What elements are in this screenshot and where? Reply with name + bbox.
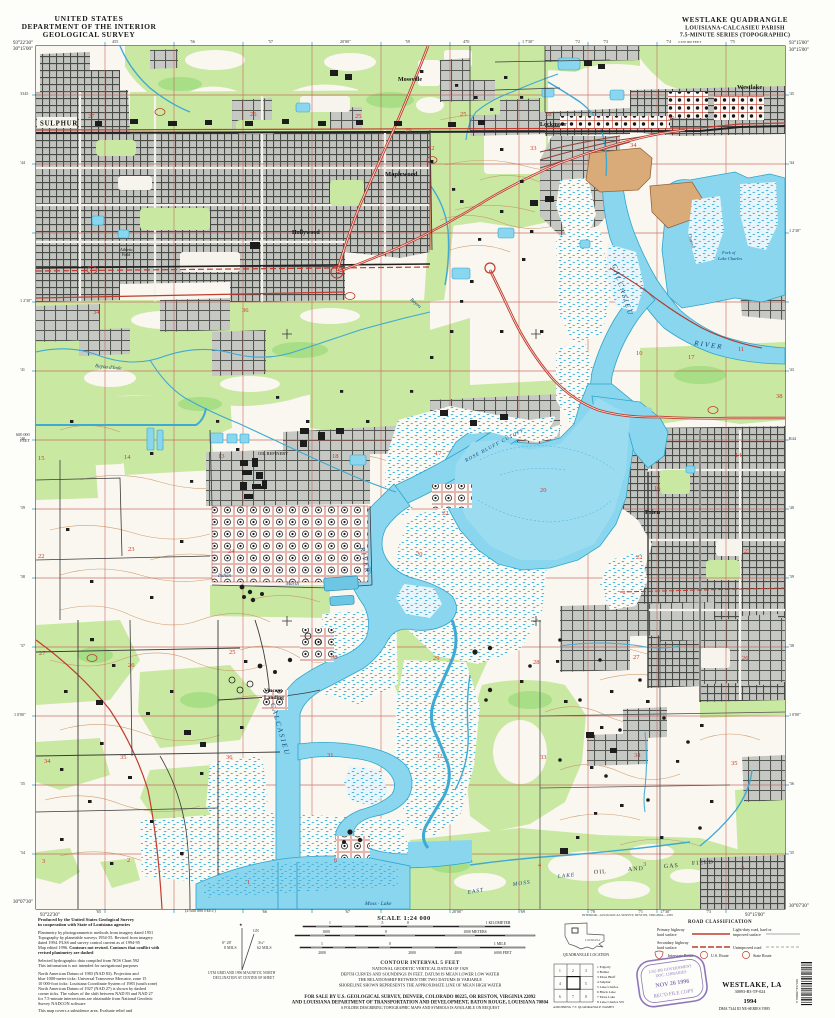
svg-text:14: 14 xyxy=(124,454,131,461)
svg-text:17: 17 xyxy=(435,450,442,457)
svg-text:'75: '75 xyxy=(730,39,735,44)
svg-text:DECLINATION AT CENTER OF SHEET: DECLINATION AT CENTER OF SHEET xyxy=(213,976,275,980)
svg-text:SHORELINE SHOWN REPRESENTS THE: SHORELINE SHOWN REPRESENTS THE APPROXIMA… xyxy=(339,983,502,988)
svg-text:93°15'00": 93°15'00" xyxy=(745,913,765,918)
svg-text:16: 16 xyxy=(654,485,661,492)
svg-text:'56: '56 xyxy=(190,39,195,44)
svg-text:NATIONAL GEODETIC VERTICAL DAT: NATIONAL GEODETIC VERTICAL DATUM OF 1929 xyxy=(372,966,468,971)
svg-text:27: 27 xyxy=(633,654,640,661)
svg-text:28: 28 xyxy=(533,659,540,666)
svg-text:'35: '35 xyxy=(20,781,25,786)
svg-text:'35: '35 xyxy=(789,850,794,855)
svg-text:20'00": 20'00" xyxy=(340,39,351,44)
svg-text:FEET: FEET xyxy=(20,438,30,443)
svg-text:State Route: State Route xyxy=(753,953,772,958)
svg-text:Marsh: Marsh xyxy=(285,582,300,587)
svg-text:'57: '57 xyxy=(268,39,273,44)
svg-text:455: 455 xyxy=(112,39,118,44)
svg-text:LOUISIANA-CALCASIEU PARISH: LOUISIANA-CALCASIEU PARISH xyxy=(685,26,785,32)
svg-text:1: 1 xyxy=(247,879,250,886)
svg-text:1 2'30": 1 2'30" xyxy=(789,228,801,233)
svg-text:17: 17 xyxy=(688,354,695,361)
svg-text:DMA 7344 III NE-SERIES V885: DMA 7344 III NE-SERIES V885 xyxy=(719,1007,770,1011)
svg-text:Maplewood: Maplewood xyxy=(385,171,418,178)
svg-text:Lockmoor: Lockmoor xyxy=(540,122,567,128)
svg-text:ADJOINING 7.5' QUADRANGLE NAME: ADJOINING 7.5' QUADRANGLE NAMES xyxy=(553,1005,614,1009)
svg-text:25: 25 xyxy=(229,649,236,656)
svg-text:20: 20 xyxy=(416,551,423,558)
svg-text:36: 36 xyxy=(226,754,233,761)
svg-text:30°15'00": 30°15'00" xyxy=(13,47,33,52)
svg-text:3 Moss Bluff: 3 Moss Bluff xyxy=(597,975,616,979)
svg-text:30°07'30": 30°07'30" xyxy=(789,904,809,909)
svg-text:★: ★ xyxy=(239,922,243,927)
svg-text:0: 0 xyxy=(385,930,387,934)
svg-text:'59: '59 xyxy=(405,39,410,44)
svg-text:10: 10 xyxy=(636,350,643,357)
svg-text:Vincent: Vincent xyxy=(264,688,282,694)
svg-text:29: 29 xyxy=(405,127,412,134)
svg-text:Field: Field xyxy=(122,252,130,257)
svg-text:A FOLDER DESCRIBING TOPOGRAPHI: A FOLDER DESCRIBING TOPOGRAPHIC MAPS AND… xyxy=(341,1006,500,1010)
svg-text:'72: '72 xyxy=(575,39,580,44)
svg-text:27: 27 xyxy=(39,650,46,657)
svg-text:'65: '65 xyxy=(96,909,101,914)
svg-text:SCALE 1:24 000: SCALE 1:24 000 xyxy=(377,915,431,922)
svg-text:'43: '43 xyxy=(789,367,794,372)
svg-text:FOR SALE BY U.S. GEOLOGICAL SU: FOR SALE BY U.S. GEOLOGICAL SURVEY, DENV… xyxy=(304,995,536,1000)
svg-text:Unimproved road: Unimproved road xyxy=(733,945,761,950)
svg-text:18: 18 xyxy=(332,453,339,460)
svg-text:5: 5 xyxy=(585,982,587,986)
svg-text:ROAD CLASSIFICATION: ROAD CLASSIFICATION xyxy=(688,920,752,925)
svg-text:.5: .5 xyxy=(381,921,384,925)
svg-text:'38: '38 xyxy=(20,574,25,579)
svg-text:'73: '73 xyxy=(603,39,608,44)
svg-text:This information is not intend: This information is not intended for nav… xyxy=(38,963,138,968)
svg-text:2: 2 xyxy=(572,969,574,973)
svg-text:6 Black Lake: 6 Black Lake xyxy=(597,990,616,994)
svg-text:7 Moss Lake: 7 Moss Lake xyxy=(597,995,616,999)
svg-text:1: 1 xyxy=(321,942,323,946)
svg-text:'66: '66 xyxy=(262,909,267,914)
svg-text:32: 32 xyxy=(436,753,443,760)
svg-text:1994: 1994 xyxy=(744,998,758,1005)
svg-text:2: 2 xyxy=(127,857,130,864)
svg-text:DEPTH CURVES AND SOUNDINGS IN: DEPTH CURVES AND SOUNDINGS IN FEET. DATU… xyxy=(341,972,500,977)
svg-text:34: 34 xyxy=(630,142,637,149)
svg-text:This map covers a subsidence a: This map covers a subsidence area. Evalu… xyxy=(38,1008,133,1013)
svg-text:WESTLAKE QUADRANGLE: WESTLAKE QUADRANGLE xyxy=(682,16,788,24)
svg-text:30: 30 xyxy=(331,654,338,661)
svg-text:1 Edgerly: 1 Edgerly xyxy=(597,965,611,969)
svg-text:9 780607 857108: 9 780607 857108 xyxy=(795,979,799,1003)
svg-text:hard surface: hard surface xyxy=(657,932,677,937)
svg-text:7: 7 xyxy=(572,995,574,999)
svg-text:23: 23 xyxy=(744,548,751,555)
svg-text:23: 23 xyxy=(128,546,135,553)
svg-text:'67: '67 xyxy=(345,909,350,914)
svg-text:1 2'30": 1 2'30" xyxy=(20,298,32,303)
svg-text:Mossville: Mossville xyxy=(398,77,422,83)
svg-text:15: 15 xyxy=(38,455,45,462)
svg-text:Fork of: Fork of xyxy=(721,250,736,255)
svg-text:34: 34 xyxy=(93,309,100,316)
svg-text:'39: '39 xyxy=(789,574,794,579)
svg-text:R44: R44 xyxy=(789,436,797,441)
svg-text:1 0'00": 1 0'00" xyxy=(14,712,26,717)
svg-text:1: 1 xyxy=(329,921,331,925)
svg-text:Westlake: Westlake xyxy=(737,84,762,91)
svg-text:8: 8 xyxy=(585,995,587,999)
svg-text:62 MILS: 62 MILS xyxy=(257,945,272,950)
svg-text:SULPHUR: SULPHUR xyxy=(40,121,78,128)
svg-text:13: 13 xyxy=(218,453,225,460)
svg-text:22: 22 xyxy=(38,553,45,560)
svg-text:28: 28 xyxy=(545,111,552,118)
svg-text:2 Buhler: 2 Buhler xyxy=(597,970,610,974)
svg-text:Indian: Indian xyxy=(217,574,232,579)
svg-text:1 0'00": 1 0'00" xyxy=(789,712,801,717)
svg-text:32: 32 xyxy=(428,145,435,152)
svg-text:WESTLAKE, LA: WESTLAKE, LA xyxy=(722,981,782,989)
svg-text:'39: '39 xyxy=(20,505,25,510)
svg-text:6: 6 xyxy=(559,995,561,999)
svg-text:26: 26 xyxy=(250,111,257,118)
svg-text:QUADRANGLE LOCATION: QUADRANGLE LOCATION xyxy=(563,953,610,957)
svg-text:22: 22 xyxy=(636,554,643,561)
svg-text:0: 0 xyxy=(389,942,391,946)
svg-text:'69: '69 xyxy=(520,909,525,914)
svg-text:'73: '73 xyxy=(706,909,711,914)
svg-text:GAS: GAS xyxy=(664,863,679,870)
svg-text:2000: 2000 xyxy=(318,951,326,955)
svg-text:OIL: OIL xyxy=(594,869,607,876)
svg-text:GN: GN xyxy=(253,928,259,933)
svg-text:'40: '40 xyxy=(789,505,794,510)
svg-text:11: 11 xyxy=(738,346,744,353)
svg-text:8 Lake Charles SW: 8 Lake Charles SW xyxy=(597,1000,625,1004)
svg-text:93°15'00": 93°15'00" xyxy=(789,41,809,46)
svg-text:'37: '37 xyxy=(20,643,25,648)
svg-text:24: 24 xyxy=(228,548,235,555)
svg-text:31: 31 xyxy=(327,752,334,759)
svg-text:27: 27 xyxy=(88,113,95,120)
svg-text:hard surface: hard surface xyxy=(657,945,677,950)
svg-text:33: 33 xyxy=(540,754,547,761)
svg-text:25: 25 xyxy=(460,111,467,118)
svg-text:OIL REFINERY: OIL REFINERY xyxy=(258,451,289,456)
svg-text:0: 0 xyxy=(407,921,409,925)
svg-text:Lake Charles: Lake Charles xyxy=(717,256,742,261)
svg-text:Survey NADCON software: Survey NADCON software xyxy=(38,1001,86,1006)
svg-text:1 7'30": 1 7'30" xyxy=(522,39,534,44)
svg-text:1 KILOMETER: 1 KILOMETER xyxy=(486,921,511,925)
svg-text:35: 35 xyxy=(120,754,127,761)
svg-text:20: 20 xyxy=(540,487,547,494)
svg-text:THE RELATIONSHIP BETWEEN THE T: THE RELATIONSHIP BETWEEN THE TWO DATUMS … xyxy=(358,977,482,982)
svg-text:26: 26 xyxy=(742,655,749,662)
svg-text:'41: '41 xyxy=(20,367,25,372)
svg-text:AND LOUISIANA DEPARTMENT OF TR: AND LOUISIANA DEPARTMENT OF TRANSPORTATI… xyxy=(292,1001,549,1006)
svg-text:30093-B3-TF-024: 30093-B3-TF-024 xyxy=(735,989,767,994)
svg-text:improved surface: improved surface xyxy=(733,932,761,937)
svg-text:600 000: 600 000 xyxy=(16,432,30,437)
svg-text:30°07'30": 30°07'30" xyxy=(13,900,33,905)
svg-text:26: 26 xyxy=(128,662,135,669)
svg-text:30°15'00": 30°15'00" xyxy=(789,48,809,53)
svg-text:Landing: Landing xyxy=(264,695,284,701)
svg-text:1000: 1000 xyxy=(322,930,330,934)
svg-text:93°22'30": 93°22'30" xyxy=(13,41,33,46)
svg-text:4 Sulphur: 4 Sulphur xyxy=(597,980,612,984)
svg-text:6000 FEET: 6000 FEET xyxy=(494,951,512,955)
svg-text:GEOLOGICAL SURVEY: GEOLOGICAL SURVEY xyxy=(43,30,136,39)
svg-text:20'00": 20'00" xyxy=(452,909,463,914)
svg-text:29: 29 xyxy=(433,655,440,662)
svg-text:'45: '45 xyxy=(789,91,794,96)
svg-text:1000 METERS: 1000 METERS xyxy=(463,930,487,934)
svg-text:36: 36 xyxy=(242,307,249,314)
svg-text:U.S. Route: U.S. Route xyxy=(711,953,729,958)
svg-text:4: 4 xyxy=(559,982,561,986)
svg-text:25: 25 xyxy=(355,113,362,120)
svg-text:14: 14 xyxy=(735,452,742,459)
svg-text:in cooperation with State of L: in cooperation with State of Louisiana a… xyxy=(38,922,130,927)
svg-text:'38: '38 xyxy=(789,643,794,648)
svg-text:8 MILS: 8 MILS xyxy=(224,945,237,950)
svg-text:1 MILE: 1 MILE xyxy=(494,942,507,946)
svg-text:revised planimetry are dashed: revised planimetry are dashed xyxy=(38,950,94,955)
svg-text:33: 33 xyxy=(530,145,537,152)
svg-text:'36: '36 xyxy=(789,781,794,786)
svg-text:3: 3 xyxy=(42,858,45,865)
svg-text:Prien: Prien xyxy=(645,509,661,516)
svg-text:5 Lake Charles: 5 Lake Charles xyxy=(597,985,619,989)
svg-text:Moss · Lake: Moss · Lake xyxy=(364,901,392,907)
svg-text:Hollywood: Hollywood xyxy=(292,230,320,236)
svg-text:35: 35 xyxy=(731,760,738,767)
svg-text:LOUISIANA: LOUISIANA xyxy=(585,939,600,942)
svg-text:2: 2 xyxy=(741,865,744,872)
svg-text:30: 30 xyxy=(668,115,675,122)
svg-text:3: 3 xyxy=(585,969,587,973)
svg-text:3345: 3345 xyxy=(20,91,28,96)
svg-text:470: 470 xyxy=(463,39,469,44)
svg-text:AND: AND xyxy=(628,866,644,873)
svg-text:2 670 000 FEET: 2 670 000 FEET xyxy=(678,40,702,44)
svg-text:1: 1 xyxy=(559,969,561,973)
svg-text:34: 34 xyxy=(44,758,51,765)
svg-text:2000: 2000 xyxy=(408,951,416,955)
svg-text:38: 38 xyxy=(776,393,783,400)
svg-text:7.5-MINUTE SERIES (TOPOGRAPHIC: 7.5-MINUTE SERIES (TOPOGRAPHIC) xyxy=(680,32,790,39)
svg-text:34: 34 xyxy=(634,752,641,759)
svg-text:UTM GRID AND 1996 MAGNETIC NOR: UTM GRID AND 1996 MAGNETIC NORTH xyxy=(208,971,276,975)
svg-text:22: 22 xyxy=(442,510,449,517)
svg-text:4000: 4000 xyxy=(454,951,462,955)
